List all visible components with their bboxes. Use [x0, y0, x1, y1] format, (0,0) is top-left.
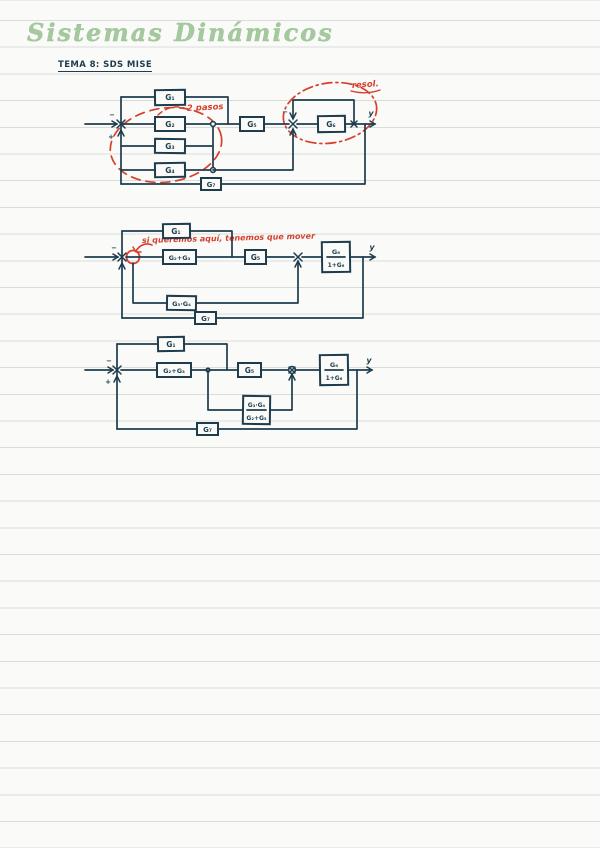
block-g1-label: G₁	[166, 340, 175, 349]
block-g5-label: G₅	[247, 120, 256, 129]
block-g1-label: G₁	[165, 93, 174, 102]
diagram-3: − + G₁ G₂+G₃ G₅ G₆ 1+G₆ y G₃·G₄ G₂+G₃ G₇	[85, 337, 372, 435]
output-label: y	[368, 109, 374, 118]
output-label: y	[366, 356, 372, 365]
notebook-page: { "page": { "title": "Sistemas Dinámicos…	[0, 0, 600, 848]
block-g4-label: G₄	[165, 166, 174, 175]
block-g7-label: G₇	[207, 181, 216, 189]
annotation-resolve: resol.	[352, 79, 380, 91]
diagram-2: si queremos aquí, tenemos que mover − G₁…	[85, 224, 375, 324]
summing-junction-2	[289, 120, 297, 128]
diagram-1: 2 pasos resol. − + G₁ G₂ G₃ G₄ G₅ −	[85, 76, 381, 190]
block-g5-label: G₅	[251, 253, 260, 262]
annotation-two-steps: 2 pasos	[187, 102, 224, 114]
diagrams-canvas: 2 pasos resol. − + G₁ G₂ G₃ G₄ G₅ −	[0, 0, 600, 848]
block-g6-denominator: 1+G₆	[326, 375, 343, 382]
block-g2-label: G₂	[165, 120, 174, 129]
sign-s1-minus: −	[109, 111, 115, 119]
block-moved-fraction-numerator: G₃·G₄	[248, 402, 266, 409]
block-g6-label: G₆	[326, 120, 335, 129]
block-g6-numerator: G₆	[332, 248, 340, 256]
wire-lower-branch	[133, 261, 298, 303]
block-g23-label: G₂+G₃	[163, 367, 185, 375]
block-moved-fraction-denominator: G₂+G₃	[246, 415, 267, 422]
sign-s1-plus: +	[108, 133, 114, 141]
block-g34-label: G₃·G₄	[172, 300, 191, 308]
block-g3-label: G₃	[165, 142, 174, 151]
sign-s1-minus: −	[111, 244, 117, 252]
output-label: y	[369, 243, 375, 252]
block-g1-label: G₁	[171, 227, 180, 236]
wire-g4-to-s2	[213, 129, 293, 170]
pickoff-node-b	[211, 122, 216, 127]
block-g7-label: G₇	[203, 426, 212, 434]
red-arrow-to-node	[136, 244, 152, 251]
block-g6-numerator: G₆	[330, 361, 338, 369]
sign-s2-minus: −	[282, 108, 288, 116]
block-g7-label: G₇	[201, 315, 210, 323]
block-g23-label: G₂+G₃	[169, 254, 191, 262]
block-g6-denominator: 1+G₆	[328, 262, 345, 269]
block-g5-label: G₅	[245, 366, 254, 375]
sign-s1-plus: +	[105, 378, 111, 386]
sign-s1-minus: −	[106, 357, 112, 365]
